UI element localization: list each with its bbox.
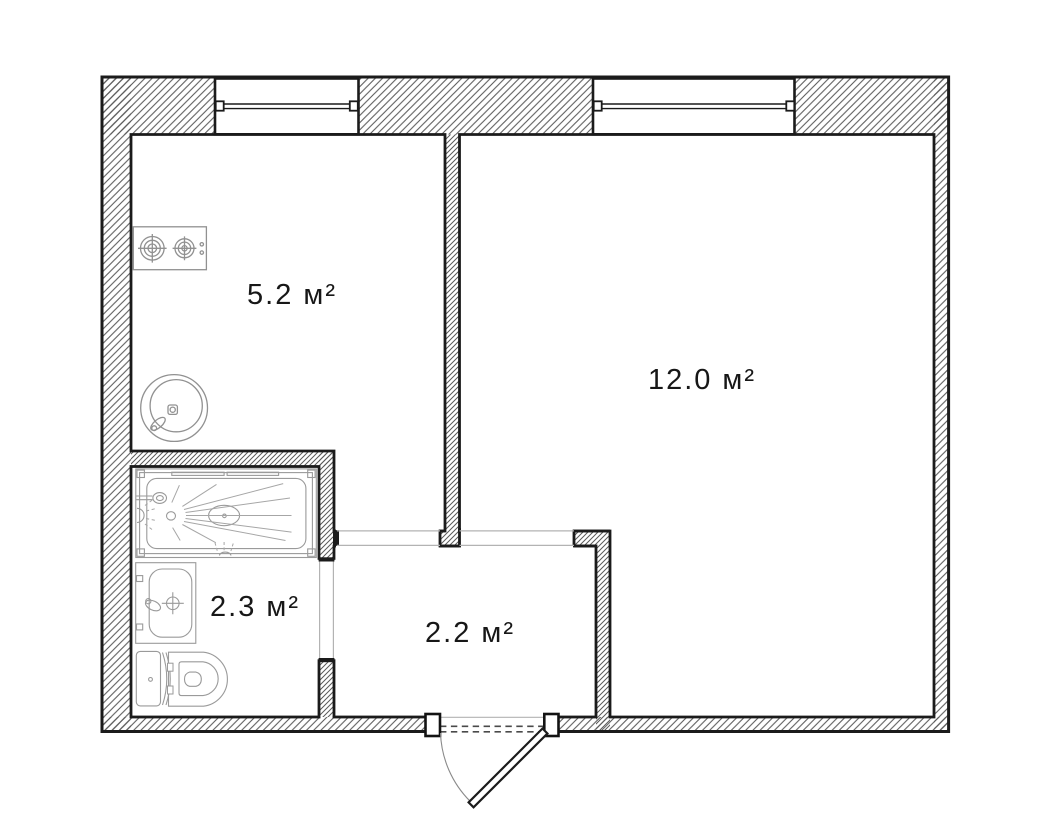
svg-text:12.0 м²: 12.0 м² xyxy=(648,364,756,396)
svg-text:2.2 м²: 2.2 м² xyxy=(425,617,515,649)
svg-text:2.3 м²: 2.3 м² xyxy=(210,591,300,623)
svg-text:5.2 м²: 5.2 м² xyxy=(247,279,337,311)
